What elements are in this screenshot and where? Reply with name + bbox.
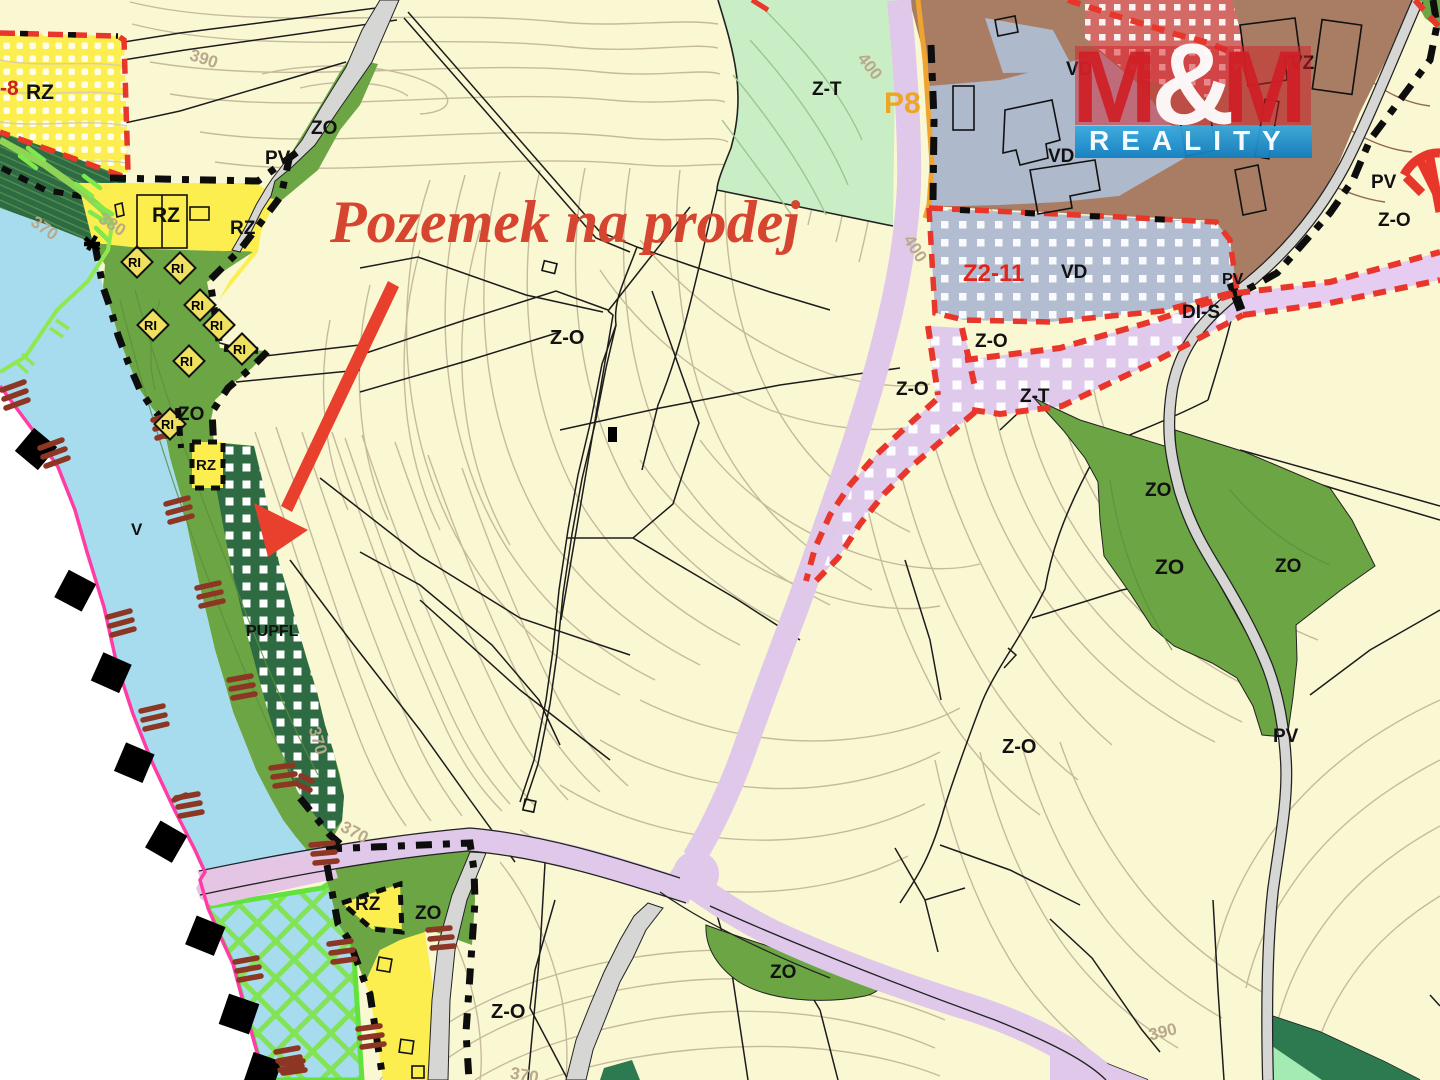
svg-text:RZ: RZ: [355, 894, 381, 915]
svg-text:Z-O: Z-O: [491, 1001, 525, 1023]
svg-text:PV: PV: [265, 148, 291, 169]
svg-text:RZ: RZ: [152, 204, 180, 227]
svg-text:ZO: ZO: [178, 404, 204, 425]
svg-text:RZ: RZ: [196, 457, 216, 474]
svg-text:ZO: ZO: [415, 903, 441, 924]
svg-text:Z2-11: Z2-11: [963, 260, 1024, 287]
svg-text:RI: RI: [210, 318, 223, 333]
svg-text:PV: PV: [1222, 271, 1244, 288]
svg-text:PUPFL: PUPFL: [246, 623, 299, 640]
svg-text:DI-S: DI-S: [1182, 302, 1220, 323]
svg-text:Z-O: Z-O: [896, 379, 929, 400]
svg-text:RZ: RZ: [230, 218, 256, 239]
svg-text:-8: -8: [0, 77, 19, 100]
svg-text:Z-O: Z-O: [975, 331, 1008, 352]
svg-text:RI: RI: [161, 417, 174, 432]
svg-text:ZO: ZO: [311, 118, 337, 139]
svg-text:PV: PV: [1371, 172, 1397, 193]
svg-text:P8: P8: [884, 87, 921, 120]
svg-text:ZO: ZO: [770, 962, 796, 983]
svg-text:RI: RI: [233, 342, 246, 357]
svg-text:RI: RI: [171, 261, 184, 276]
svg-text:VD: VD: [1048, 146, 1074, 167]
svg-text:RI: RI: [128, 255, 141, 270]
svg-text:RI: RI: [180, 354, 193, 369]
svg-text:Pozemek na prodej: Pozemek na prodej: [329, 189, 800, 255]
svg-text:V: V: [131, 520, 143, 539]
svg-text:REALITY: REALITY: [1089, 125, 1293, 156]
svg-text:Z-T: Z-T: [1020, 386, 1050, 407]
svg-text:ZO: ZO: [1155, 556, 1184, 579]
svg-text:RZ: RZ: [26, 81, 54, 104]
svg-text:VD: VD: [1061, 262, 1087, 283]
svg-text:Z-O: Z-O: [1002, 736, 1036, 758]
svg-text:Z-T: Z-T: [812, 79, 842, 100]
svg-text:Z-O: Z-O: [550, 327, 584, 349]
svg-text:RI: RI: [191, 298, 204, 313]
svg-text:ZO: ZO: [1145, 480, 1171, 501]
svg-text:PV: PV: [1273, 726, 1299, 747]
svg-text:ZO: ZO: [1275, 556, 1301, 577]
svg-text:RI: RI: [144, 318, 157, 333]
svg-text:Z-O: Z-O: [1378, 210, 1411, 231]
